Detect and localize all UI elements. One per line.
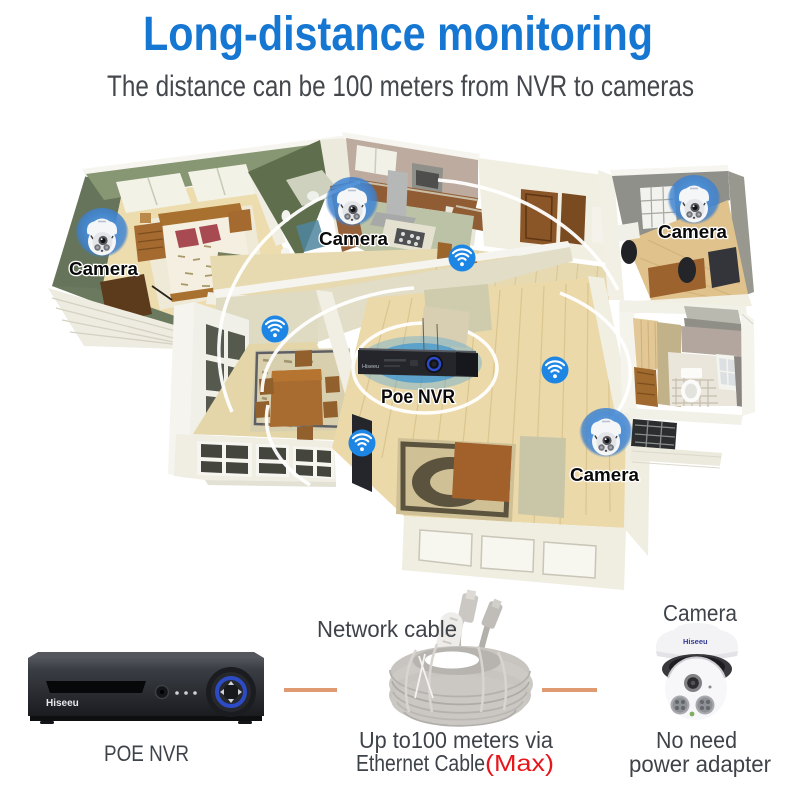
svg-text:The distance can be 100 meters: The distance can be 100 meters from NVR … — [107, 70, 694, 103]
svg-text:power adapter: power adapter — [629, 751, 771, 777]
svg-text:No need: No need — [656, 727, 737, 753]
svg-text:(Max): (Max) — [485, 750, 554, 776]
svg-text:Camera: Camera — [69, 259, 139, 279]
svg-text:Camera: Camera — [663, 600, 737, 626]
svg-text:Ethernet Cable: Ethernet Cable — [356, 750, 485, 776]
svg-text:Camera: Camera — [658, 222, 728, 242]
svg-text:POE NVR: POE NVR — [104, 741, 189, 766]
svg-text:Long-distance monitoring: Long-distance monitoring — [143, 8, 653, 61]
svg-text:Hiseeu: Hiseeu — [362, 364, 379, 370]
svg-text:Hiseeu: Hiseeu — [46, 698, 79, 709]
svg-text:Network cable: Network cable — [317, 616, 457, 642]
svg-text:Camera: Camera — [319, 229, 389, 249]
svg-text:Poe NVR: Poe NVR — [381, 387, 455, 408]
svg-text:Hiseeu: Hiseeu — [683, 637, 708, 646]
svg-text:Camera: Camera — [570, 465, 640, 485]
